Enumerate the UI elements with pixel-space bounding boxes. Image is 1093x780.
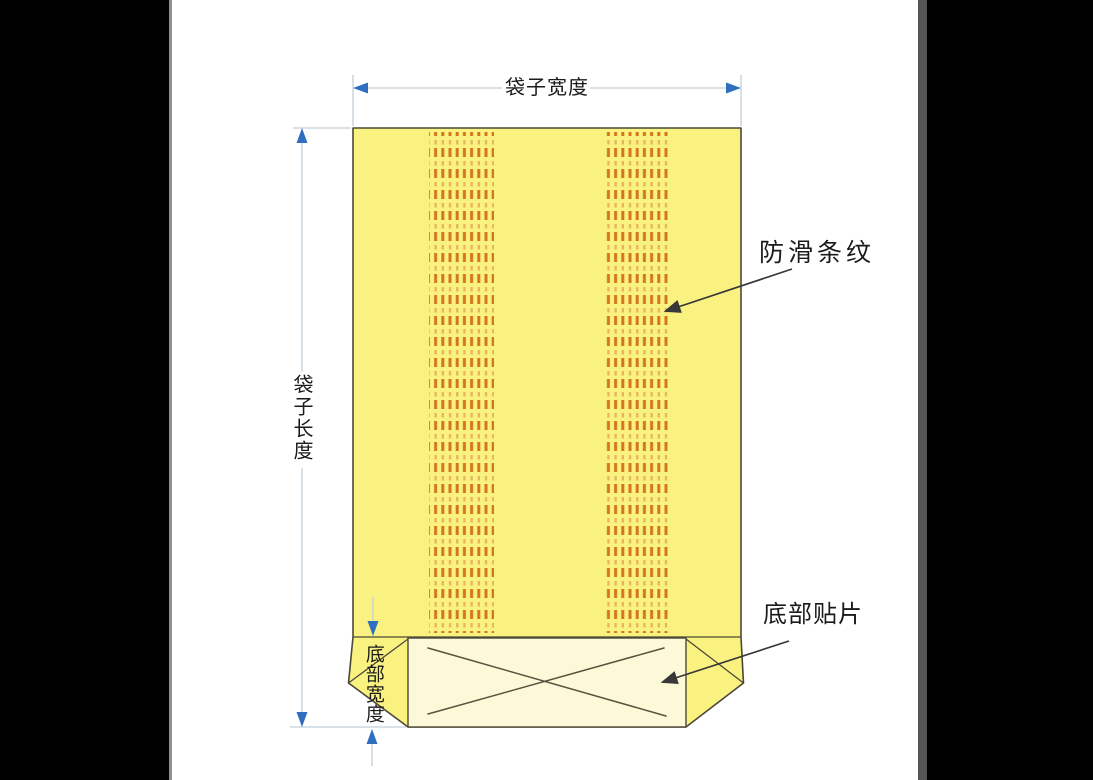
anti-slip-stripes-left bbox=[429, 132, 494, 633]
bag-width-label: 袋子宽度 bbox=[505, 76, 589, 99]
length-arrow-bottom-icon bbox=[297, 712, 308, 727]
anti-slip-stripes-label: 防滑条纹 bbox=[759, 239, 875, 268]
width-arrow-right-icon bbox=[726, 83, 741, 94]
bag-length-label: 袋子长度 bbox=[290, 374, 313, 462]
width-arrow-left-icon bbox=[353, 83, 368, 94]
bottom-patch-label: 底部贴片 bbox=[763, 601, 863, 629]
anti-slip-stripes-right bbox=[605, 132, 668, 633]
bag-diagram-svg bbox=[0, 0, 1093, 780]
screenshot-root: 袋子宽度 袋子长度 防滑条纹 底部贴片 底部宽度 bbox=[0, 0, 1093, 780]
bottom-width-arrow-up-icon bbox=[367, 729, 378, 744]
length-arrow-top-icon bbox=[297, 128, 308, 143]
bottom-width-label: 底部宽度 bbox=[362, 644, 384, 724]
